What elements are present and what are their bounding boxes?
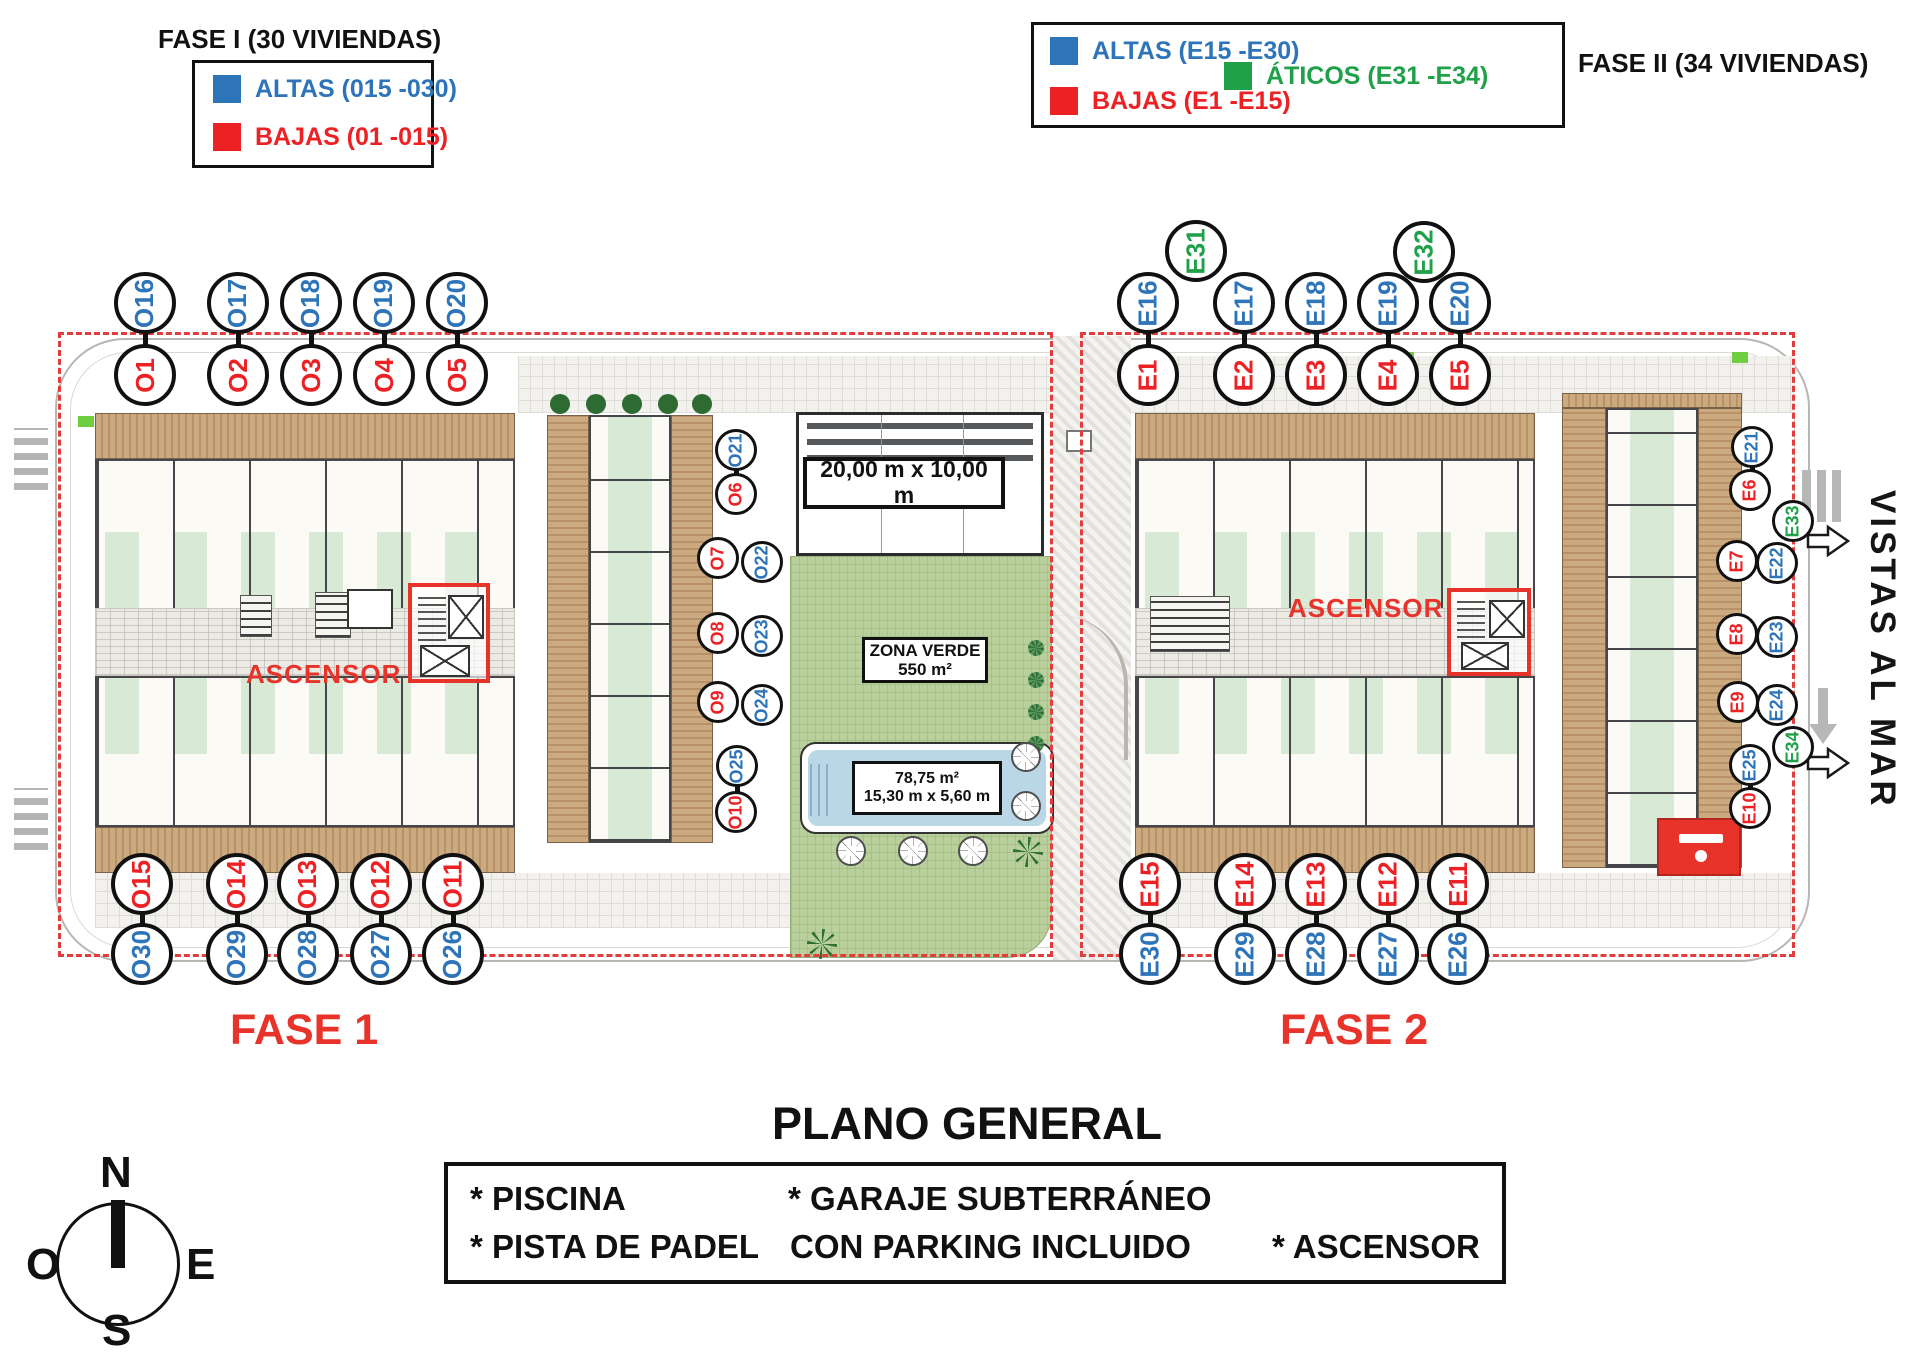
altas-swatch	[213, 75, 241, 103]
unit-circle-label: E13	[1300, 861, 1331, 907]
stairs-icon	[418, 593, 446, 641]
palm-icon	[1013, 837, 1043, 867]
unit-circle-label: E25	[1740, 749, 1761, 781]
unit-circle-E20: E20	[1429, 272, 1491, 334]
unit-circle-label: E11	[1442, 862, 1473, 907]
terrace-deck	[1135, 413, 1535, 459]
court-line	[807, 439, 1033, 445]
unit-circle-label: O27	[366, 929, 397, 978]
unit-circle-label: E30	[1134, 931, 1165, 977]
umbrella-icon	[836, 836, 866, 866]
unit-circle-E18: E18	[1285, 272, 1347, 334]
unit-circle-label: O10	[726, 795, 747, 829]
unit-circle-O25: O25	[716, 745, 758, 787]
unit-circle-O14: O14	[206, 853, 268, 915]
unit-circle-E21: E21	[1731, 426, 1773, 468]
unit-circle-E6: E6	[1729, 469, 1771, 511]
unit-circle-O24: O24	[741, 684, 783, 726]
pool-area-value: 78,75 m²	[855, 770, 999, 788]
unit-circle-label: O2	[223, 358, 254, 393]
unit-circle-label: O18	[296, 278, 327, 327]
unit-circle-label: O7	[707, 546, 728, 570]
site-plan: FASE I (30 VIVIENDAS) ALTAS (015 -030) B…	[0, 0, 1920, 1356]
palm-icon	[807, 929, 837, 959]
unit-circle-label: O29	[222, 929, 253, 978]
legend-item-bajas-f2: BAJAS (E1 -E15)	[1050, 87, 1291, 116]
tree-icon	[550, 394, 570, 414]
unit-circle-E31: E31	[1165, 220, 1227, 282]
unit-circle-label: E23	[1767, 621, 1788, 653]
unit-circle-O8: O8	[697, 612, 739, 654]
unit-circle-label: E34	[1783, 731, 1804, 763]
unit-circle-O18: O18	[280, 272, 342, 334]
unit-circle-E17: E17	[1213, 272, 1275, 334]
unit-circle-O20: O20	[426, 272, 488, 334]
unit-circle-E34: E34	[1772, 726, 1814, 768]
amenity-pista: * PISTA DE PADEL	[470, 1228, 759, 1266]
bajas-swatch	[1050, 87, 1078, 115]
building-fase1-west-top	[95, 413, 515, 610]
green-marker	[1732, 352, 1748, 363]
unit-circle-O26: O26	[422, 923, 484, 985]
unit-circle-label: O8	[707, 621, 728, 645]
amenity-ascensor: * ASCENSOR	[1272, 1228, 1480, 1266]
fase2-label: FASE 2	[1280, 1006, 1428, 1055]
unit-circle-label: O11	[438, 860, 469, 908]
building-fase2-west-bottom	[1135, 676, 1535, 873]
utility-box	[1066, 430, 1092, 452]
unit-circle-O10: O10	[715, 791, 757, 833]
fase1-label: FASE 1	[230, 1006, 378, 1055]
unit-circle-label: O6	[725, 482, 746, 506]
unit-circle-E19: E19	[1357, 272, 1419, 334]
compass-north: N	[100, 1148, 132, 1198]
unit-circle-label: E15	[1134, 861, 1165, 907]
umbrella-icon	[898, 836, 928, 866]
zona-verde-area-value: 550 m²	[865, 660, 985, 679]
amenity-parking: CON PARKING INCLUIDO	[790, 1228, 1191, 1266]
unit-circle-O28: O28	[277, 923, 339, 985]
building-fase1-west-bottom	[95, 676, 515, 873]
terrace-deck	[95, 413, 515, 459]
unit-circle-label: O14	[222, 859, 253, 908]
legend-item-altas-f1: ALTAS (015 -030)	[213, 75, 457, 104]
elevator-icon	[448, 595, 484, 639]
green-marker	[78, 416, 94, 427]
compass-needle	[111, 1200, 125, 1268]
zona-verde-box: ZONA VERDE 550 m²	[862, 637, 988, 683]
unit-circle-label: E4	[1373, 359, 1404, 391]
unit-circle-O13: O13	[277, 853, 339, 915]
unit-circle-label: O15	[127, 859, 158, 908]
unit-circle-E14: E14	[1214, 853, 1276, 915]
unit-circle-E23: E23	[1756, 616, 1798, 658]
unit-circle-E2: E2	[1213, 344, 1275, 406]
unit-circle-E30: E30	[1119, 923, 1181, 985]
apartment-units	[589, 415, 671, 843]
terrace-deck	[1562, 393, 1742, 408]
unit-circle-label: O16	[130, 278, 161, 327]
unit-circle-label: O24	[752, 688, 773, 722]
amenity-piscina: * PISCINA	[470, 1180, 626, 1218]
bike-racks-icon	[240, 595, 272, 637]
apartment-units	[95, 676, 515, 827]
shrub-icon	[1028, 640, 1044, 656]
unit-circle-E3: E3	[1285, 344, 1347, 406]
unit-circle-O29: O29	[206, 923, 268, 985]
padel-dimensions-box: 20,00 m x 10,00 m	[803, 457, 1005, 509]
building-fase2-west-top	[1135, 413, 1535, 610]
altas-swatch	[1050, 37, 1078, 65]
bike-racks-icon	[315, 592, 351, 638]
unit-circle-E32: E32	[1393, 221, 1455, 283]
legend-fase2-box: ALTAS (E15 -E30) BAJAS (E1 -E15) ÁTICOS …	[1031, 22, 1565, 128]
unit-circle-label: E20	[1444, 280, 1475, 326]
unit-circle-label: E6	[1740, 479, 1761, 501]
unit-circle-label: O22	[752, 545, 773, 579]
unit-circle-label: O5	[442, 358, 473, 393]
unit-circle-O16: O16	[114, 272, 176, 334]
unit-circle-E15: E15	[1119, 853, 1181, 915]
unit-circle-O23: O23	[741, 615, 783, 657]
unit-circle-label: O25	[727, 749, 748, 783]
unit-circle-O12: O12	[350, 853, 412, 915]
padel-dimensions: 20,00 m x 10,00 m	[807, 457, 1001, 509]
unit-circle-O1: O1	[114, 344, 176, 406]
unit-circle-O19: O19	[353, 272, 415, 334]
legend-item-aticos-f2: ÁTICOS (E31 -E34)	[1224, 62, 1488, 91]
unit-circle-E11: E11	[1427, 853, 1489, 915]
zona-verde-label: ZONA VERDE	[865, 641, 985, 660]
umbrella-icon	[1011, 742, 1041, 772]
unit-circle-E9: E9	[1717, 681, 1759, 723]
page-title: PLANO GENERAL	[642, 1098, 1292, 1150]
terrace-deck	[547, 415, 589, 843]
garage-door-icon	[1679, 834, 1723, 843]
unit-circle-label: E24	[1767, 689, 1788, 721]
unit-circle-E29: E29	[1214, 923, 1276, 985]
unit-circle-O11: O11	[422, 853, 484, 915]
unit-circle-label: E33	[1783, 505, 1804, 537]
unit-circle-label: E22	[1767, 547, 1788, 579]
apartment-units	[1135, 676, 1535, 827]
unit-circle-label: E27	[1372, 931, 1403, 977]
legend-fase1-title: FASE I (30 VIVIENDAS)	[158, 24, 441, 55]
unit-circle-label: E26	[1442, 931, 1473, 977]
ascensor-label-fase1: ASCENSOR	[246, 659, 401, 690]
unit-circle-label: O13	[293, 859, 324, 908]
unit-circle-label: E21	[1742, 431, 1763, 463]
vistas-al-mar-label: VISTAS AL MAR	[1862, 490, 1902, 810]
unit-circle-O9: O9	[697, 681, 739, 723]
unit-circle-O7: O7	[697, 537, 739, 579]
unit-circle-E1: E1	[1117, 344, 1179, 406]
unit-circle-O17: O17	[207, 272, 269, 334]
unit-circle-E16: E16	[1117, 272, 1179, 334]
unit-circle-label: O12	[366, 859, 397, 908]
unit-circle-label: O26	[438, 929, 469, 978]
unit-circle-O22: O22	[741, 541, 783, 583]
unit-circle-E26: E26	[1427, 923, 1489, 985]
bajas-swatch	[213, 123, 241, 151]
unit-circle-label: O28	[293, 929, 324, 978]
ascensor-zone-fase1	[408, 583, 490, 683]
unit-circle-label: O20	[442, 278, 473, 327]
ascensor-label-fase2: ASCENSOR	[1288, 593, 1443, 624]
unit-circle-label: O21	[726, 433, 747, 467]
legend-fase2-title: FASE II (34 VIVIENDAS)	[1578, 48, 1868, 79]
unit-circle-E8: E8	[1716, 613, 1758, 655]
unit-circle-O6: O6	[715, 473, 757, 515]
unit-circle-label: E1	[1133, 359, 1164, 391]
unit-circle-label: O4	[369, 358, 400, 393]
court-line	[807, 423, 1033, 429]
compass-south: S	[102, 1306, 131, 1356]
stairs-icon	[1457, 598, 1485, 638]
unit-circle-label: E3	[1301, 359, 1332, 391]
unit-circle-label: E10	[1740, 792, 1761, 824]
apartment-units	[1606, 408, 1698, 868]
unit-circle-label: E16	[1132, 280, 1163, 326]
tree-icon	[622, 394, 642, 414]
unit-circle-O3: O3	[280, 344, 342, 406]
bike-racks-icon	[1150, 596, 1230, 652]
unit-circle-label: O1	[130, 358, 161, 393]
unit-circle-E5: E5	[1429, 344, 1491, 406]
compass-west: O	[26, 1240, 60, 1290]
tree-icon	[586, 394, 606, 414]
building-fase2-east	[1562, 408, 1742, 868]
parking-stalls-icon	[14, 788, 48, 850]
unit-circle-O30: O30	[111, 923, 173, 985]
unit-circle-label: E19	[1372, 280, 1403, 326]
down-arrow-icon	[1818, 688, 1828, 724]
crosswalk-bar	[1817, 470, 1826, 522]
unit-circle-label: E9	[1728, 691, 1749, 713]
building-fase1-east	[547, 415, 713, 843]
unit-circle-label: E7	[1727, 550, 1748, 572]
unit-circle-O5: O5	[426, 344, 488, 406]
unit-circle-O4: O4	[353, 344, 415, 406]
unit-circle-label: O17	[223, 278, 254, 327]
stair-core	[347, 589, 393, 629]
shrub-icon	[1028, 704, 1044, 720]
terrace-deck	[1562, 408, 1606, 868]
legend-item-bajas-f1: BAJAS (01 -015)	[213, 123, 448, 152]
unit-circle-O15: O15	[111, 853, 173, 915]
parking-stalls-icon	[14, 428, 48, 490]
unit-circle-E27: E27	[1357, 923, 1419, 985]
unit-circle-E7: E7	[1716, 540, 1758, 582]
unit-circle-E12: E12	[1357, 853, 1419, 915]
unit-circle-E33: E33	[1772, 500, 1814, 542]
pool-dimensions: 15,30 m x 5,60 m	[855, 788, 999, 806]
legend-fase1-box: ALTAS (015 -030) BAJAS (01 -015)	[192, 60, 434, 168]
unit-circle-label: E14	[1229, 861, 1260, 907]
unit-circle-E24: E24	[1756, 684, 1798, 726]
garage-door-icon	[1695, 850, 1707, 862]
unit-circle-label: E29	[1229, 931, 1260, 977]
unit-circle-O27: O27	[350, 923, 412, 985]
unit-circle-label: O19	[369, 278, 400, 327]
umbrella-icon	[958, 836, 988, 866]
unit-circle-O21: O21	[715, 429, 757, 471]
umbrella-icon	[1011, 791, 1041, 821]
unit-circle-E4: E4	[1357, 344, 1419, 406]
amenity-garaje: * GARAJE SUBTERRÁNEO	[788, 1180, 1212, 1218]
shrub-icon	[1028, 672, 1044, 688]
unit-circle-label: E2	[1229, 359, 1260, 391]
unit-circle-label: E18	[1300, 280, 1331, 326]
sea-direction-arrow-icon	[1806, 524, 1850, 558]
pool-dimensions-box: 78,75 m² 15,30 m x 5,60 m	[852, 761, 1002, 815]
aticos-swatch	[1224, 62, 1252, 90]
elevator-icon	[1461, 642, 1509, 670]
unit-circle-label: E31	[1180, 228, 1211, 274]
unit-circle-label: E28	[1300, 931, 1331, 977]
unit-circle-O2: O2	[207, 344, 269, 406]
unit-circle-label: O30	[127, 929, 158, 978]
tree-icon	[692, 394, 712, 414]
ascensor-zone-fase2	[1447, 588, 1531, 676]
pool-steps	[810, 764, 834, 816]
unit-circle-E28: E28	[1285, 923, 1347, 985]
unit-circle-label: O23	[752, 619, 773, 653]
unit-circle-label: E5	[1445, 359, 1476, 391]
unit-circle-E22: E22	[1756, 542, 1798, 584]
unit-circle-label: E8	[1727, 623, 1748, 645]
garage-entrance	[1657, 818, 1741, 876]
crosswalk-bar	[1832, 470, 1841, 522]
unit-circle-label: E17	[1228, 280, 1259, 326]
unit-circle-E25: E25	[1729, 744, 1771, 786]
unit-circle-E13: E13	[1285, 853, 1347, 915]
unit-circle-label: O3	[296, 358, 327, 393]
unit-circle-label: E12	[1372, 861, 1403, 907]
unit-circle-label: O9	[707, 690, 728, 714]
compass-east: E	[186, 1240, 215, 1290]
unit-circle-label: E32	[1408, 229, 1439, 275]
unit-circle-E10: E10	[1729, 787, 1771, 829]
tree-icon	[658, 394, 678, 414]
elevator-icon	[1489, 600, 1525, 638]
elevator-icon	[420, 645, 470, 677]
